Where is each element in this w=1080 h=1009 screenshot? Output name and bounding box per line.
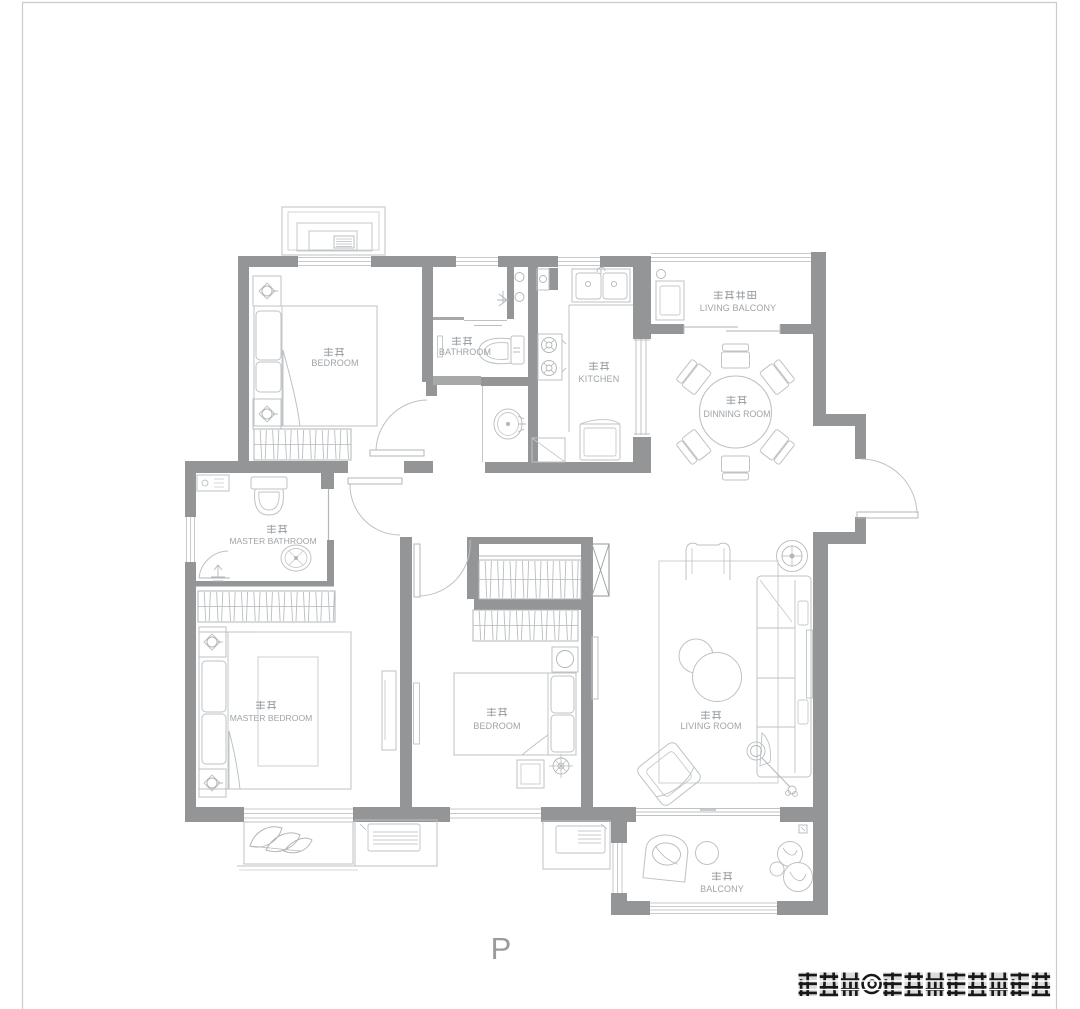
svg-text:BALCONY: BALCONY	[700, 884, 744, 894]
svg-text:DINNING ROOM: DINNING ROOM	[704, 409, 771, 419]
svg-text:MASTER BATHROOM: MASTER BATHROOM	[229, 536, 316, 546]
svg-text:LIVING BALCONY: LIVING BALCONY	[700, 303, 776, 313]
svg-text:LIVING ROOM: LIVING ROOM	[680, 721, 741, 731]
svg-text:KITCHEN: KITCHEN	[579, 374, 620, 384]
svg-text:BATHROOM: BATHROOM	[439, 347, 491, 357]
svg-text:BEDROOM: BEDROOM	[473, 721, 520, 731]
svg-text:P: P	[491, 931, 512, 966]
svg-text:BEDROOM: BEDROOM	[311, 358, 358, 368]
svg-text:MASTER BEDROOM: MASTER BEDROOM	[230, 713, 313, 723]
